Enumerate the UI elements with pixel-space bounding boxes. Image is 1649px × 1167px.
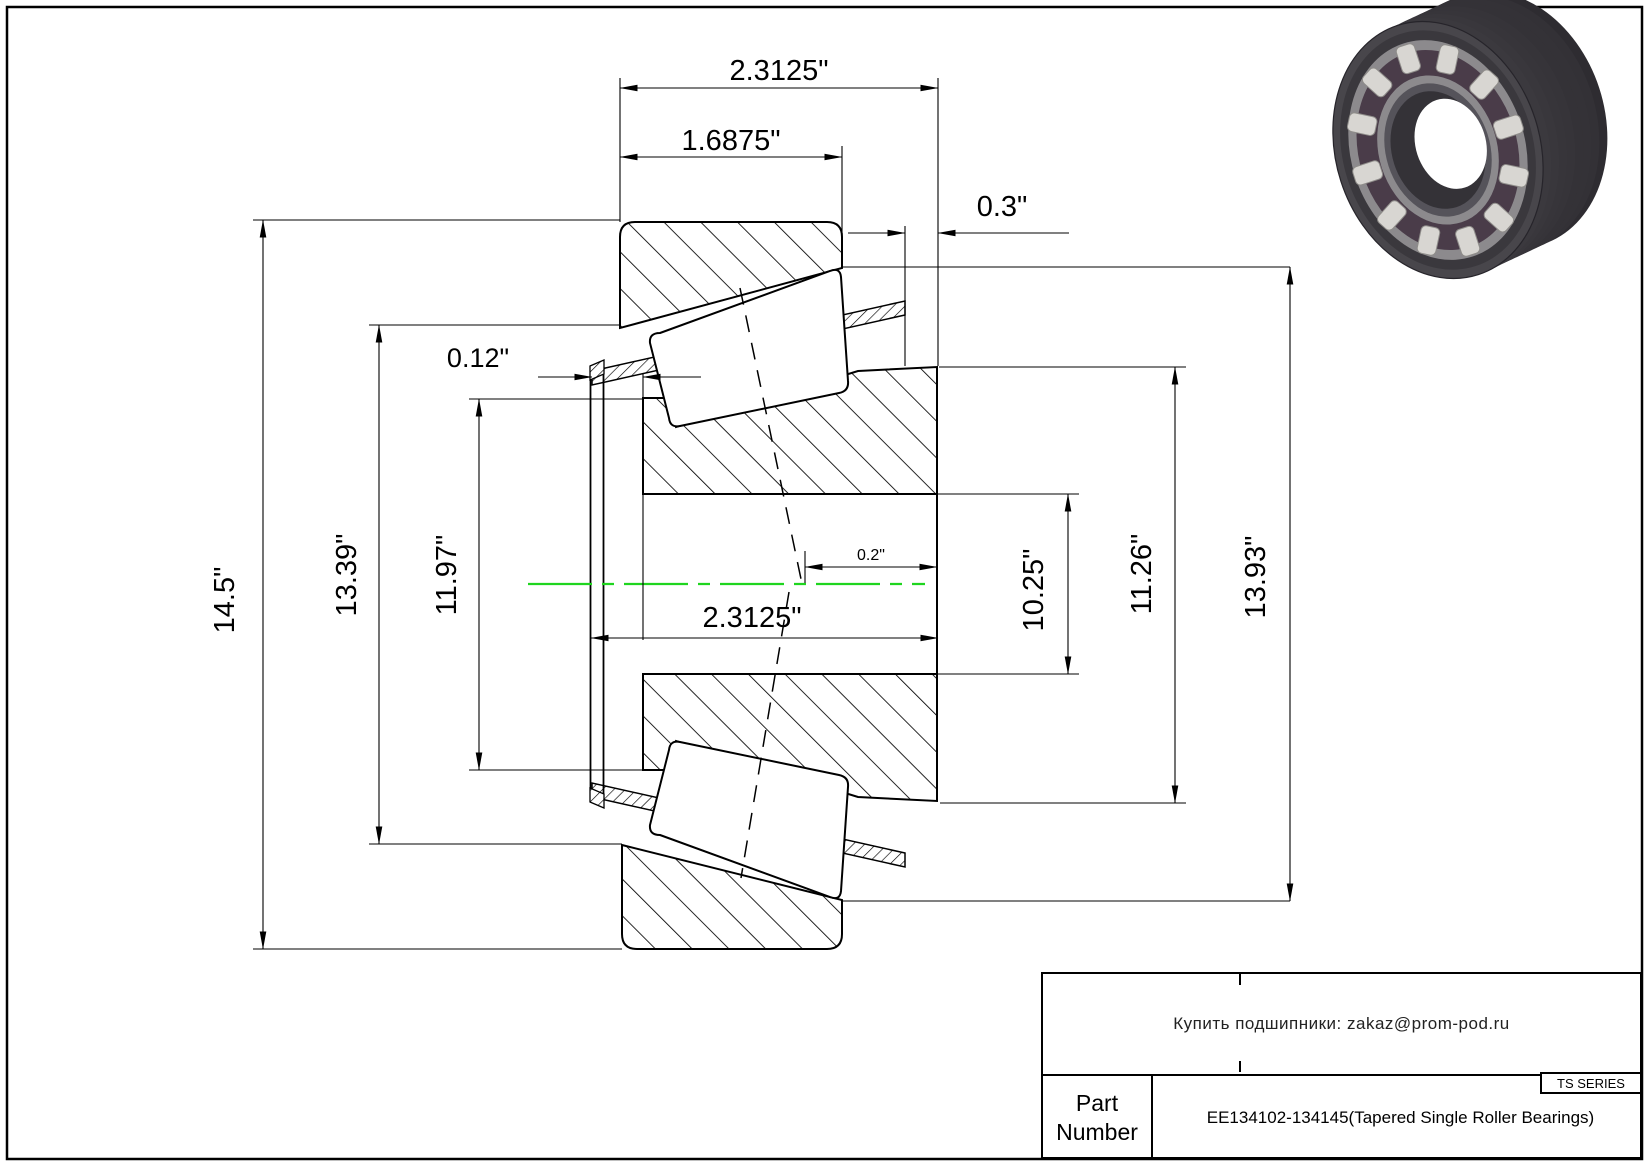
dim-label-left-od: 14.5" <box>209 567 241 634</box>
series-badge-text: TS SERIES <box>1557 1076 1625 1091</box>
title-block: Купить подшипники: zakaz@prom-pod.ru Par… <box>1041 972 1642 1159</box>
series-badge: TS SERIES <box>1540 1072 1642 1094</box>
dim-label-bore-width: 2.3125" <box>703 602 802 634</box>
dim-label-cup-stand-out: 0.3" <box>977 191 1028 223</box>
dim-label-cup-front-width: 1.6875" <box>682 125 781 157</box>
bearing-3d-image <box>1298 0 1643 306</box>
dim-label-bore-dia: 10.25" <box>1018 549 1050 632</box>
dim-label-top-overall: 2.3125" <box>730 55 829 87</box>
dim-label-left-race-od: 13.39" <box>331 534 363 617</box>
drawing-sheet: 2.3125" 1.6875" 0.3" 0.12" 2.3125" 0.2" … <box>0 0 1649 1167</box>
part-number-value: EE134102-134145(Tapered Single Roller Be… <box>1207 1108 1594 1128</box>
dim-label-right-rib-od: 11.26" <box>1126 534 1158 615</box>
dim-label-apex-offset: 0.2" <box>857 547 885 564</box>
dim-label-cage-flange: 0.12" <box>447 343 509 373</box>
part-number-label-cell: Part Number <box>1043 1076 1153 1159</box>
title-block-contact-row: Купить подшипники: zakaz@prom-pod.ru <box>1043 974 1640 1074</box>
dim-label-left-rib-od: 11.97" <box>431 535 463 616</box>
dim-label-right-race-od: 13.93" <box>1240 536 1272 619</box>
contact-text: Купить подшипники: zakaz@prom-pod.ru <box>1173 1014 1510 1034</box>
bearing-section-geometry <box>590 222 937 949</box>
part-number-label: Part Number <box>1043 1089 1151 1147</box>
